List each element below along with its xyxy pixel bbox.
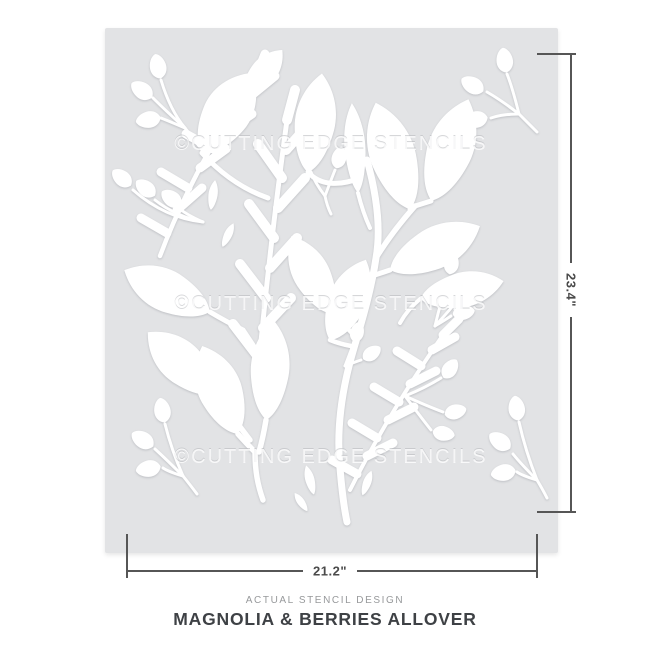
height-dimension-line bbox=[570, 317, 572, 512]
height-dimension-line bbox=[570, 54, 572, 263]
watermark-text: ©CUTTING EDGE STENCILS ©CUTTING EDGE STE… bbox=[174, 445, 487, 468]
stencil-product-image: ©CUTTING EDGE STENCILS ©CUTTING EDGE STE… bbox=[0, 0, 650, 650]
caption: ACTUAL STENCIL DESIGN MAGNOLIA & BERRIES… bbox=[0, 595, 650, 630]
watermark: ©CUTTING EDGE STENCILS bbox=[174, 446, 487, 468]
width-dimension-line bbox=[357, 570, 537, 572]
stencil-design: ©CUTTING EDGE STENCILS ©CUTTING EDGE STE… bbox=[105, 28, 558, 553]
width-dimension-label: 21.2" bbox=[313, 564, 347, 579]
watermark: ©CUTTING EDGE STENCILS bbox=[174, 133, 487, 155]
stencil-sheet: ©CUTTING EDGE STENCILS ©CUTTING EDGE STE… bbox=[105, 28, 558, 553]
width-dimension-tick-right bbox=[536, 534, 538, 578]
caption-kicker: ACTUAL STENCIL DESIGN bbox=[0, 595, 650, 606]
watermark: ©CUTTING EDGE STENCILS bbox=[174, 293, 487, 315]
watermark-text: ©CUTTING EDGE STENCILS ©CUTTING EDGE STE… bbox=[174, 292, 487, 315]
berry-sprig bbox=[485, 395, 547, 498]
caption-title: MAGNOLIA & BERRIES ALLOVER bbox=[0, 609, 650, 630]
watermark-text: ©CUTTING EDGE STENCILS ©CUTTING EDGE STE… bbox=[174, 132, 487, 155]
height-dimension-label: 23.4" bbox=[564, 273, 579, 307]
berry-sprig bbox=[457, 47, 537, 132]
height-dimension-tick-bottom bbox=[537, 511, 576, 513]
width-dimension-line bbox=[127, 570, 303, 572]
